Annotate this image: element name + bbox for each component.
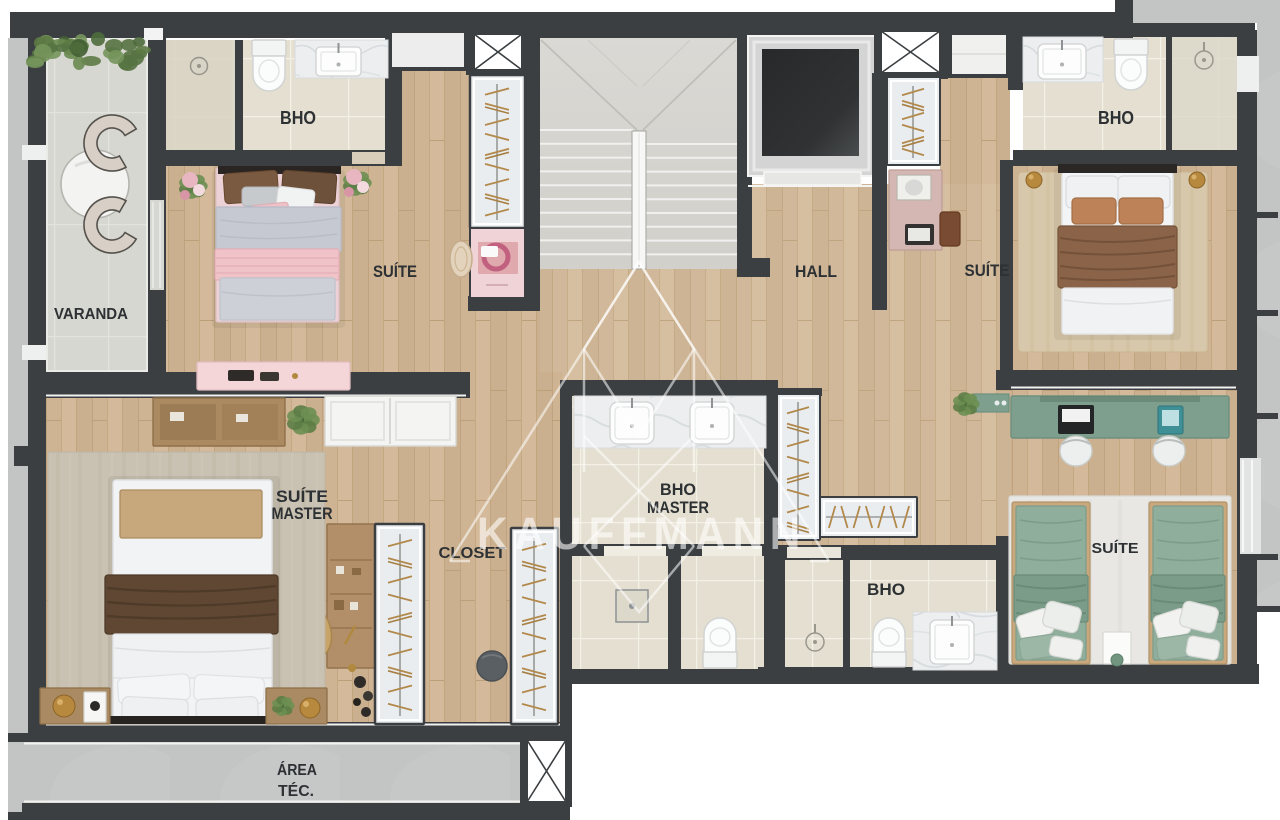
svg-text:SUÍTE: SUÍTE <box>373 262 417 281</box>
svg-text:MASTER: MASTER <box>272 504 333 523</box>
svg-text:SUÍTE: SUÍTE <box>965 261 1010 280</box>
svg-text:BHO: BHO <box>867 580 905 599</box>
svg-text:VARANDA: VARANDA <box>54 306 128 323</box>
svg-text:ÁREA: ÁREA <box>277 760 317 779</box>
svg-text:BHO: BHO <box>660 480 696 499</box>
svg-text:BHO: BHO <box>1098 108 1134 128</box>
svg-text:KAUFFMANN: KAUFFMANN <box>477 508 807 559</box>
svg-text:BHO: BHO <box>280 108 316 128</box>
svg-text:HALL: HALL <box>795 262 837 281</box>
svg-text:SUÍTE: SUÍTE <box>1092 540 1139 557</box>
svg-text:TÉC.: TÉC. <box>278 781 314 800</box>
